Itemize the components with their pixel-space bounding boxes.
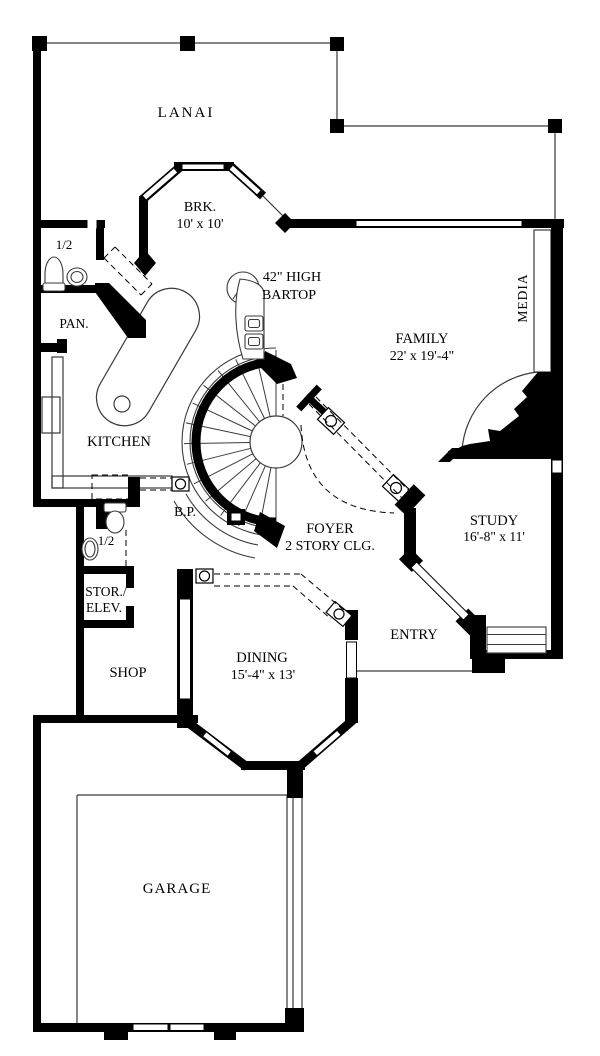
door-gap-powder-upper bbox=[88, 220, 97, 229]
room-label-stor-2: ELEV. bbox=[86, 600, 122, 615]
wall-stor-right-upper bbox=[126, 566, 134, 588]
window-dining-right bbox=[347, 642, 357, 678]
column-bp-core bbox=[176, 479, 186, 489]
wall-west-mid bbox=[76, 507, 84, 723]
lanai-column-3 bbox=[330, 37, 344, 51]
study-window-seat bbox=[487, 627, 546, 653]
dining-soffit-dash-4 bbox=[293, 586, 331, 619]
garage-pier-1 bbox=[104, 1032, 128, 1040]
sink-lower-basin bbox=[85, 541, 95, 557]
window-family-top bbox=[356, 221, 522, 227]
room-dims-brk: 10' x 10' bbox=[176, 217, 223, 232]
wall-pantry-cap bbox=[57, 339, 67, 353]
wall-shop-top bbox=[33, 715, 198, 723]
pedestal-sink-base bbox=[43, 283, 65, 291]
window-east-study bbox=[552, 460, 562, 473]
room-label-kitchen: KITCHEN bbox=[87, 434, 151, 450]
window-dining-diag-left bbox=[203, 732, 232, 756]
wall-family-study bbox=[448, 451, 551, 459]
garage-corner-jog bbox=[285, 1008, 304, 1024]
floor-plan-sheet: LANAI BRK. 10' x 10' 42" HIGH BARTOP 1/2… bbox=[0, 0, 600, 1056]
kitchen-counter-left bbox=[52, 357, 63, 488]
room-label-stor-1: STOR./ bbox=[85, 584, 127, 599]
toilet-lower-bowl bbox=[106, 511, 124, 533]
room-label-powder-upper: 1/2 bbox=[56, 237, 73, 252]
label-bartop-1: 42" HIGH bbox=[263, 270, 321, 285]
room-label-entry: ENTRY bbox=[390, 627, 438, 643]
room-label-powder-lower: 1/2 bbox=[98, 533, 115, 548]
room-label-pantry: PAN. bbox=[59, 316, 88, 331]
media-cabinet bbox=[534, 230, 551, 372]
window-dining-diag-right bbox=[313, 730, 341, 756]
window-bay-top bbox=[182, 164, 224, 170]
room-dims-family: 22' x 19'-4" bbox=[390, 349, 454, 364]
bar-sink-2-basin bbox=[249, 338, 260, 346]
room-note-foyer: 2 STORY CLG. bbox=[285, 539, 375, 554]
room-dims-study: 16'-8" x 11' bbox=[463, 529, 525, 544]
window-bay-left bbox=[142, 168, 178, 200]
wall-stor-bottom bbox=[77, 620, 134, 628]
wall-west-lower bbox=[33, 715, 41, 1032]
wall-court-stub bbox=[287, 765, 303, 798]
room-label-study: STUDY bbox=[470, 513, 519, 529]
column-dining-1-core bbox=[200, 571, 210, 581]
room-label-foyer: FOYER bbox=[306, 521, 354, 537]
garage-pier-2 bbox=[214, 1032, 236, 1040]
bartop-counter bbox=[227, 272, 264, 359]
window-bay-right bbox=[229, 165, 261, 195]
stair-wall-cap-bottom bbox=[254, 512, 285, 548]
kitchen-upper-cab-dash bbox=[92, 475, 130, 499]
room-dims-dining: 15'-4" x 13' bbox=[231, 668, 295, 683]
lanai-column-4 bbox=[330, 119, 344, 133]
wall-powder-upper-right bbox=[96, 226, 104, 260]
kitchen-appliance bbox=[42, 397, 60, 433]
bay-column-left bbox=[134, 250, 156, 276]
stair-post-core bbox=[232, 514, 241, 521]
wall-east bbox=[551, 219, 563, 659]
wall-west-upper bbox=[33, 40, 41, 507]
room-label-shop: SHOP bbox=[109, 665, 146, 681]
window-dining-left bbox=[180, 599, 191, 699]
room-label-media: MEDIA bbox=[515, 273, 530, 322]
room-label-garage: GARAGE bbox=[143, 881, 212, 897]
bar-sink-1-basin bbox=[249, 320, 260, 328]
stair-newel bbox=[250, 416, 302, 468]
stair-wall-cap-top bbox=[260, 351, 297, 384]
garage-door-panel-2 bbox=[170, 1024, 204, 1031]
wall-bay-left bbox=[139, 196, 148, 258]
room-label-brk: BRK. bbox=[184, 200, 216, 215]
pantry-door-dash-3 bbox=[104, 247, 115, 258]
brk-open-edge bbox=[263, 196, 285, 218]
floor-plan-drawing: LANAI BRK. 10' x 10' 42" HIGH BARTOP 1/2… bbox=[0, 0, 600, 1056]
lanai-column-5 bbox=[548, 119, 562, 133]
room-label-lanai: LANAI bbox=[158, 105, 215, 121]
entry-door-leaf bbox=[411, 562, 469, 620]
island-sink bbox=[114, 396, 130, 412]
wall-stor-top bbox=[77, 566, 134, 574]
pantry-door-dash-4 bbox=[141, 284, 152, 295]
label-bartop-2: BARTOP bbox=[262, 288, 316, 303]
wall-dining-right-lower bbox=[345, 678, 358, 723]
column-foyer-1-core bbox=[326, 416, 337, 427]
toilet-upper-bowl bbox=[71, 272, 83, 283]
column-dining-2-core bbox=[334, 609, 344, 619]
room-label-dining: DINING bbox=[236, 650, 288, 666]
room-label-family: FAMILY bbox=[395, 331, 449, 347]
lanai-column-2 bbox=[180, 36, 195, 51]
wall-stor-right-lower bbox=[126, 606, 134, 628]
garage-door-panel-1 bbox=[133, 1024, 168, 1031]
room-label-bp: B.P. bbox=[174, 504, 196, 519]
foyer-arch-dash bbox=[301, 425, 394, 513]
